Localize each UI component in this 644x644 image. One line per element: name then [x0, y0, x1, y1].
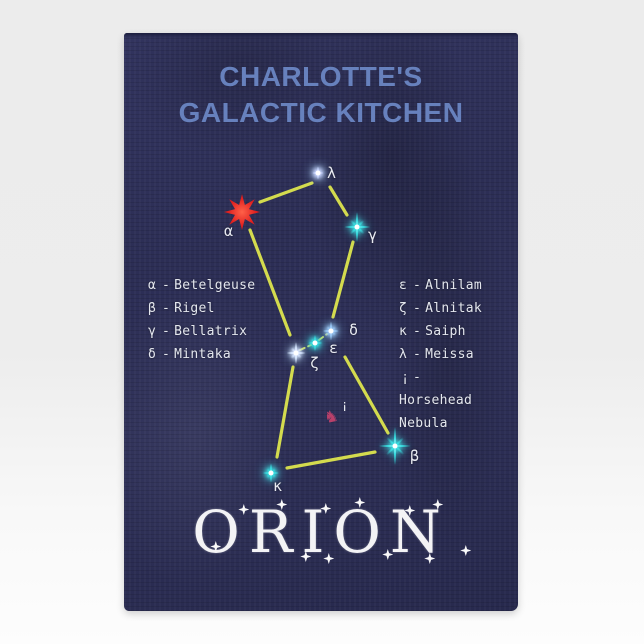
- legend-star-name: Meissa: [425, 343, 474, 366]
- legend-separator: -: [409, 278, 425, 293]
- constellation-line: [333, 242, 353, 317]
- star-core: [355, 225, 360, 230]
- legend-symbol: κ: [399, 320, 409, 343]
- legend-star-name: Mintaka: [174, 343, 231, 366]
- legend-item-alnitak: ζ-Alnitak: [399, 297, 511, 320]
- legend-item-saiph: κ-Saiph: [399, 320, 511, 343]
- legend-separator: -: [158, 324, 174, 339]
- legend-right: ε-Alnilamζ-Alnitakκ-Saiphλ-Meissa!-Horse…: [399, 274, 511, 435]
- constellation-line: [250, 230, 290, 335]
- legend-symbol: ε: [399, 274, 409, 297]
- star-label-alpha: α: [224, 222, 233, 240]
- legend-separator: -: [158, 301, 174, 316]
- legend-symbol: α: [148, 274, 158, 297]
- legend-star-name: Saiph: [425, 320, 466, 343]
- star-core: [294, 351, 299, 356]
- legend-symbol: !: [399, 366, 409, 389]
- star-core: [269, 471, 274, 476]
- star-label-lambda: λ: [327, 164, 336, 182]
- constellation-line: [345, 357, 388, 433]
- legend-star-name: Bellatrix: [174, 320, 247, 343]
- legend-separator: -: [409, 370, 425, 385]
- legend-symbol: ζ: [399, 297, 409, 320]
- legend-star-name: Rigel: [174, 297, 215, 320]
- star-label-zeta: ζ: [310, 354, 319, 372]
- legend-separator: -: [409, 324, 425, 339]
- legend-item-alnilam: ε-Alnilam: [399, 274, 511, 297]
- legend-separator: -: [158, 278, 174, 293]
- constellation-line: [260, 183, 312, 202]
- star-label-epsilon: ε: [329, 339, 338, 357]
- legend-left: α-Betelgeuseβ-Rigelγ-Bellatrixδ-Mintaka: [148, 274, 255, 366]
- legend-star-name: Betelgeuse: [174, 274, 255, 297]
- legend-star-name: Alnitak: [425, 297, 482, 320]
- kitchen-towel: CHARLOTTE'S GALACTIC KITCHEN αλγδεζκβ ♞ …: [124, 33, 518, 611]
- star-decoration-icon: [460, 545, 471, 556]
- star-core: [393, 444, 398, 449]
- star-label-delta: δ: [349, 321, 358, 339]
- legend-item-betelgeuse: α-Betelgeuse: [148, 274, 255, 297]
- legend-item-rigel: β-Rigel: [148, 297, 255, 320]
- legend-symbol: λ: [399, 343, 409, 366]
- legend-item-meissa: λ-Meissa: [399, 343, 511, 366]
- star-core: [329, 329, 334, 334]
- legend-item-mintaka: δ-Mintaka: [148, 343, 255, 366]
- legend-star-name: Horsehead Nebula: [399, 389, 485, 435]
- constellation-line: [287, 452, 375, 468]
- legend-symbol: δ: [148, 343, 158, 366]
- nebula-pin-icon: !: [341, 399, 348, 413]
- constellation-name-area: ORION: [124, 501, 518, 563]
- star-label-gamma: γ: [368, 226, 377, 244]
- legend-item-bellatrix: γ-Bellatrix: [148, 320, 255, 343]
- horsehead-icon: ♞: [322, 406, 340, 428]
- legend-item-horsehead-nebula: !-Horsehead Nebula: [399, 366, 511, 435]
- legend-separator: -: [158, 347, 174, 362]
- star-core: [316, 171, 321, 176]
- star-core: [313, 341, 318, 346]
- constellation-line: [277, 367, 293, 457]
- constellation-line: [330, 187, 347, 215]
- legend-star-name: Alnilam: [425, 274, 482, 297]
- legend-symbol: γ: [148, 320, 158, 343]
- legend-separator: -: [409, 301, 425, 316]
- legend-separator: -: [409, 347, 425, 362]
- star-label-beta: β: [410, 447, 419, 465]
- star-label-kappa: κ: [273, 477, 282, 495]
- constellation-line: [300, 345, 311, 350]
- legend-symbol: β: [148, 297, 158, 320]
